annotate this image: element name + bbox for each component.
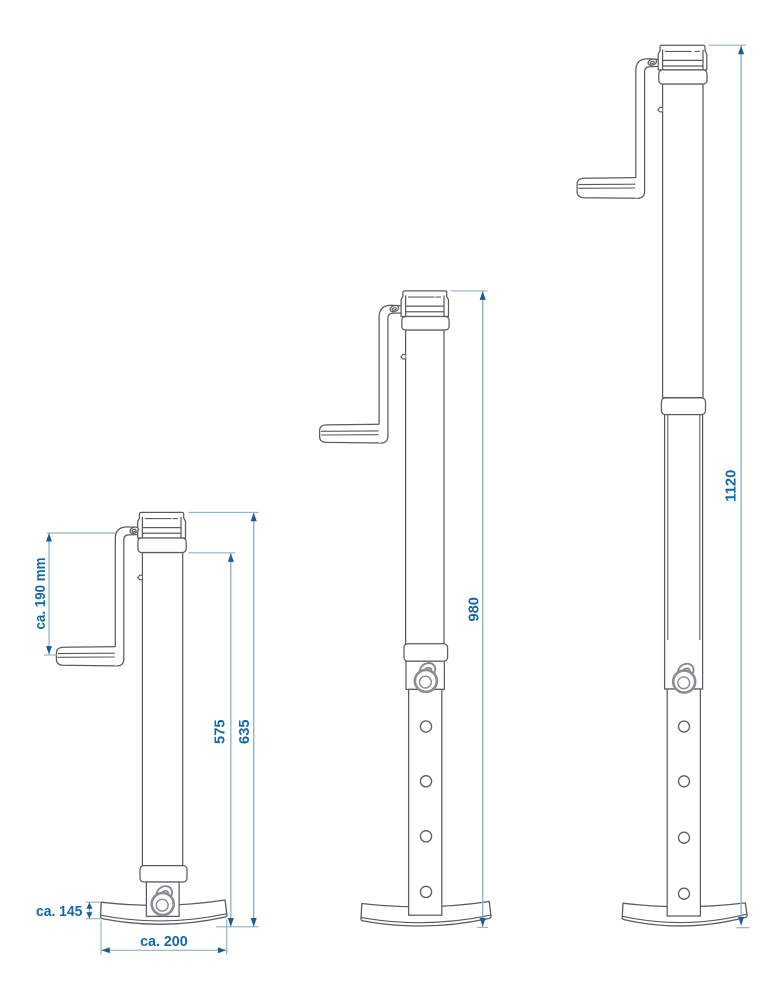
svg-text:ca. 190 mm: ca. 190 mm: [32, 558, 49, 630]
svg-text:ca. 145: ca. 145: [36, 903, 83, 920]
svg-text:635: 635: [236, 719, 253, 744]
svg-text:575: 575: [212, 719, 229, 744]
svg-text:1120: 1120: [722, 470, 739, 502]
svg-text:980: 980: [466, 597, 483, 622]
svg-text:ca. 200: ca. 200: [140, 933, 188, 950]
